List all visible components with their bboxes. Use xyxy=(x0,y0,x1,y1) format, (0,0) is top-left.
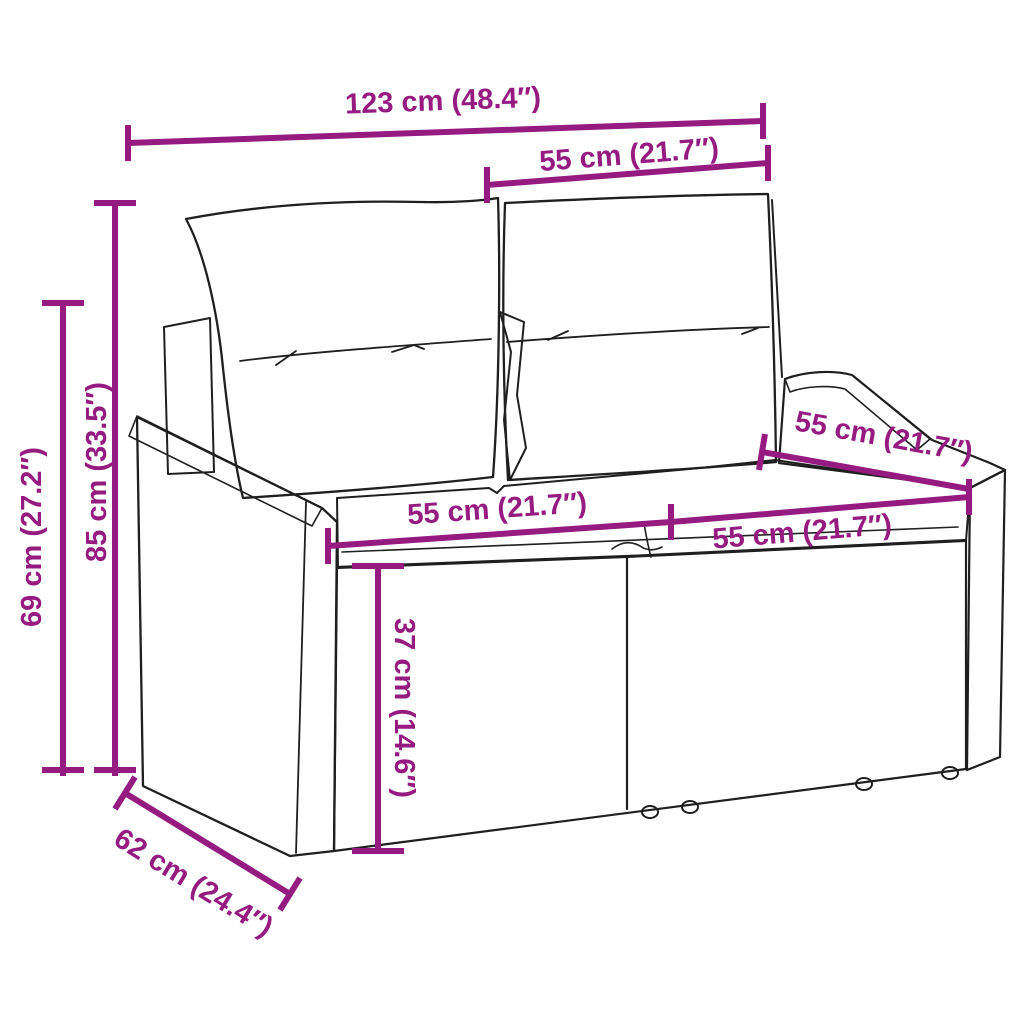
foot xyxy=(642,806,658,818)
dimension-label: 123 cm (48.4″) xyxy=(345,82,542,121)
left-armrest-body xyxy=(137,417,337,856)
back-pillows xyxy=(186,194,776,498)
back-pillow-right xyxy=(503,194,776,480)
sofa-feet xyxy=(642,767,958,818)
dimension-seat-width-right: 55 cm (21.7″) xyxy=(671,479,969,556)
left-armrest xyxy=(129,416,337,856)
dimension-label: 55 cm (21.7″) xyxy=(406,487,588,531)
dimension-seat-depth-top: 55 cm (21.7″) xyxy=(759,405,975,489)
dimension-label: 37 cm (14.6″) xyxy=(388,618,420,798)
dimension-backrest-width: 55 cm (21.7″) xyxy=(487,132,768,203)
back-pillow-left xyxy=(186,198,499,498)
sofa-dimension-diagram: 123 cm (48.4″) 55 cm (21.7″) 85 cm (33.5… xyxy=(0,0,1024,1024)
left-armrest-corner-edge xyxy=(296,502,306,853)
dimension-label: 85 cm (33.5″) xyxy=(81,382,113,562)
dimension-diagram-page: 123 cm (48.4″) 55 cm (21.7″) 85 cm (33.5… xyxy=(0,0,1024,1024)
dimension-annotations: 123 cm (48.4″) 55 cm (21.7″) 85 cm (33.5… xyxy=(16,82,975,944)
dimension-line xyxy=(42,303,84,776)
right-side-panel xyxy=(967,470,1005,770)
front-panel xyxy=(334,540,966,851)
dimension-seat-width-left: 55 cm (21.7″) xyxy=(328,487,671,564)
back-pillow-left-crease xyxy=(240,339,491,365)
left-armrest-top xyxy=(129,416,322,526)
dimension-back-height: 85 cm (33.5″) xyxy=(81,203,136,776)
dimension-seat-height: 37 cm (14.6″) xyxy=(352,566,420,851)
foot xyxy=(942,767,958,779)
dimension-label: 62 cm (24.4″) xyxy=(108,822,278,943)
dimension-arm-height: 69 cm (27.2″) xyxy=(16,303,84,776)
foot xyxy=(682,801,698,813)
dimension-label: 69 cm (27.2″) xyxy=(16,447,48,627)
back-pillow-right-crease xyxy=(507,327,769,342)
dimension-base-depth: 62 cm (24.4″) xyxy=(108,777,300,944)
